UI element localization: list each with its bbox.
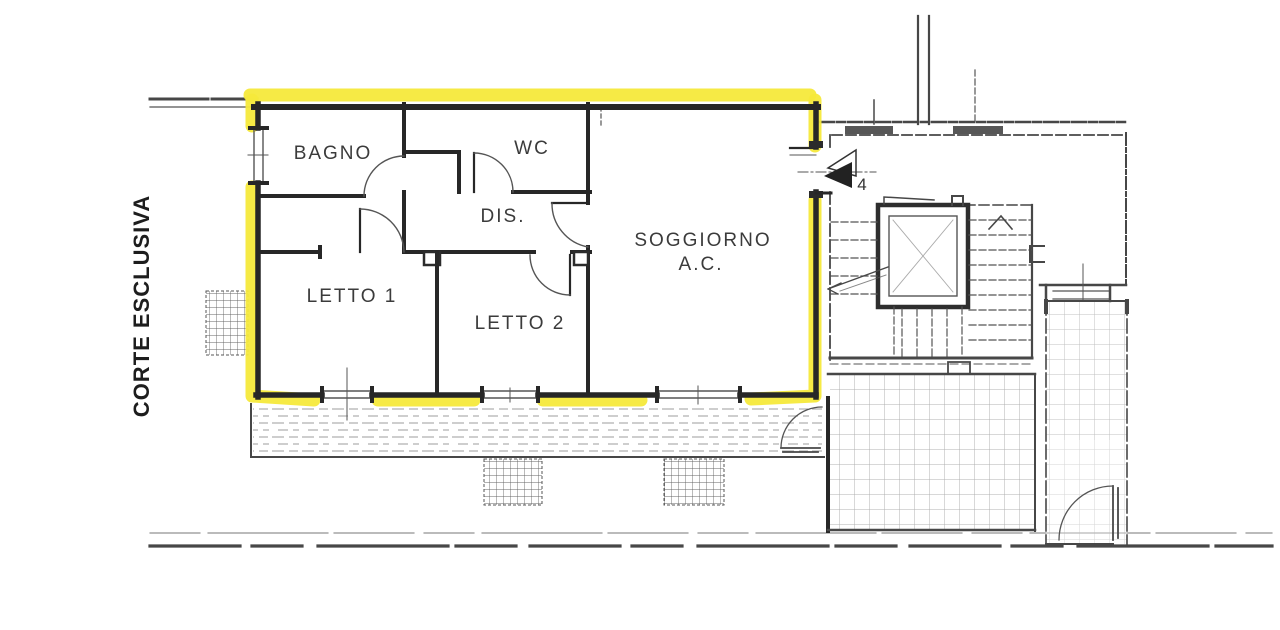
terrace-side <box>1046 301 1127 544</box>
hatch-square <box>206 291 248 355</box>
balcony <box>251 368 824 457</box>
door-arcs <box>360 153 588 295</box>
room-label-bagno: BAGNO <box>294 143 373 164</box>
room-label-wc: WC <box>514 138 550 159</box>
hatch-square <box>484 459 542 505</box>
room-label-letto1: LETTO 1 <box>307 286 398 307</box>
stair-up-arrow-icon <box>989 216 1012 229</box>
corte-esclusiva-label: CORTE ESCLUSIVA <box>129 195 154 417</box>
terrace-main <box>828 362 1035 531</box>
window <box>248 128 268 183</box>
stair-treads-right <box>969 220 1031 340</box>
entrance-marker: 4 <box>798 150 876 194</box>
wc-door-arc <box>474 153 513 192</box>
labels: BAGNO WC DIS. SOGGIORNO A.C. LETTO 1 LET… <box>129 138 772 417</box>
wall-pier <box>953 126 1003 134</box>
hatch-square <box>664 459 724 505</box>
wall-pillar <box>574 252 588 265</box>
floor-plan-page: 4 <box>0 0 1280 630</box>
room-label-letto2: LETTO 2 <box>475 313 566 334</box>
room-label-dis: DIS. <box>481 206 526 227</box>
elevator-cross <box>893 220 953 292</box>
entrance-number: 4 <box>857 175 866 194</box>
letto1-door-arc <box>360 209 404 252</box>
room-label-soggiorno: SOGGIORNO <box>634 230 771 251</box>
soggiorno-door-arc <box>552 203 588 247</box>
wall-pier <box>845 126 893 134</box>
floor-plan-drawing: 4 <box>0 0 1280 630</box>
entrance-arrow-icon <box>824 162 852 188</box>
door-jamb <box>809 141 823 148</box>
staircase <box>828 135 1044 364</box>
stair-treads-bottom <box>894 307 962 356</box>
letto2-door-arc <box>530 255 570 295</box>
stair-treads-left <box>831 222 877 294</box>
elevator <box>878 196 968 307</box>
room-label-soggiorno-ac: A.C. <box>679 254 724 275</box>
